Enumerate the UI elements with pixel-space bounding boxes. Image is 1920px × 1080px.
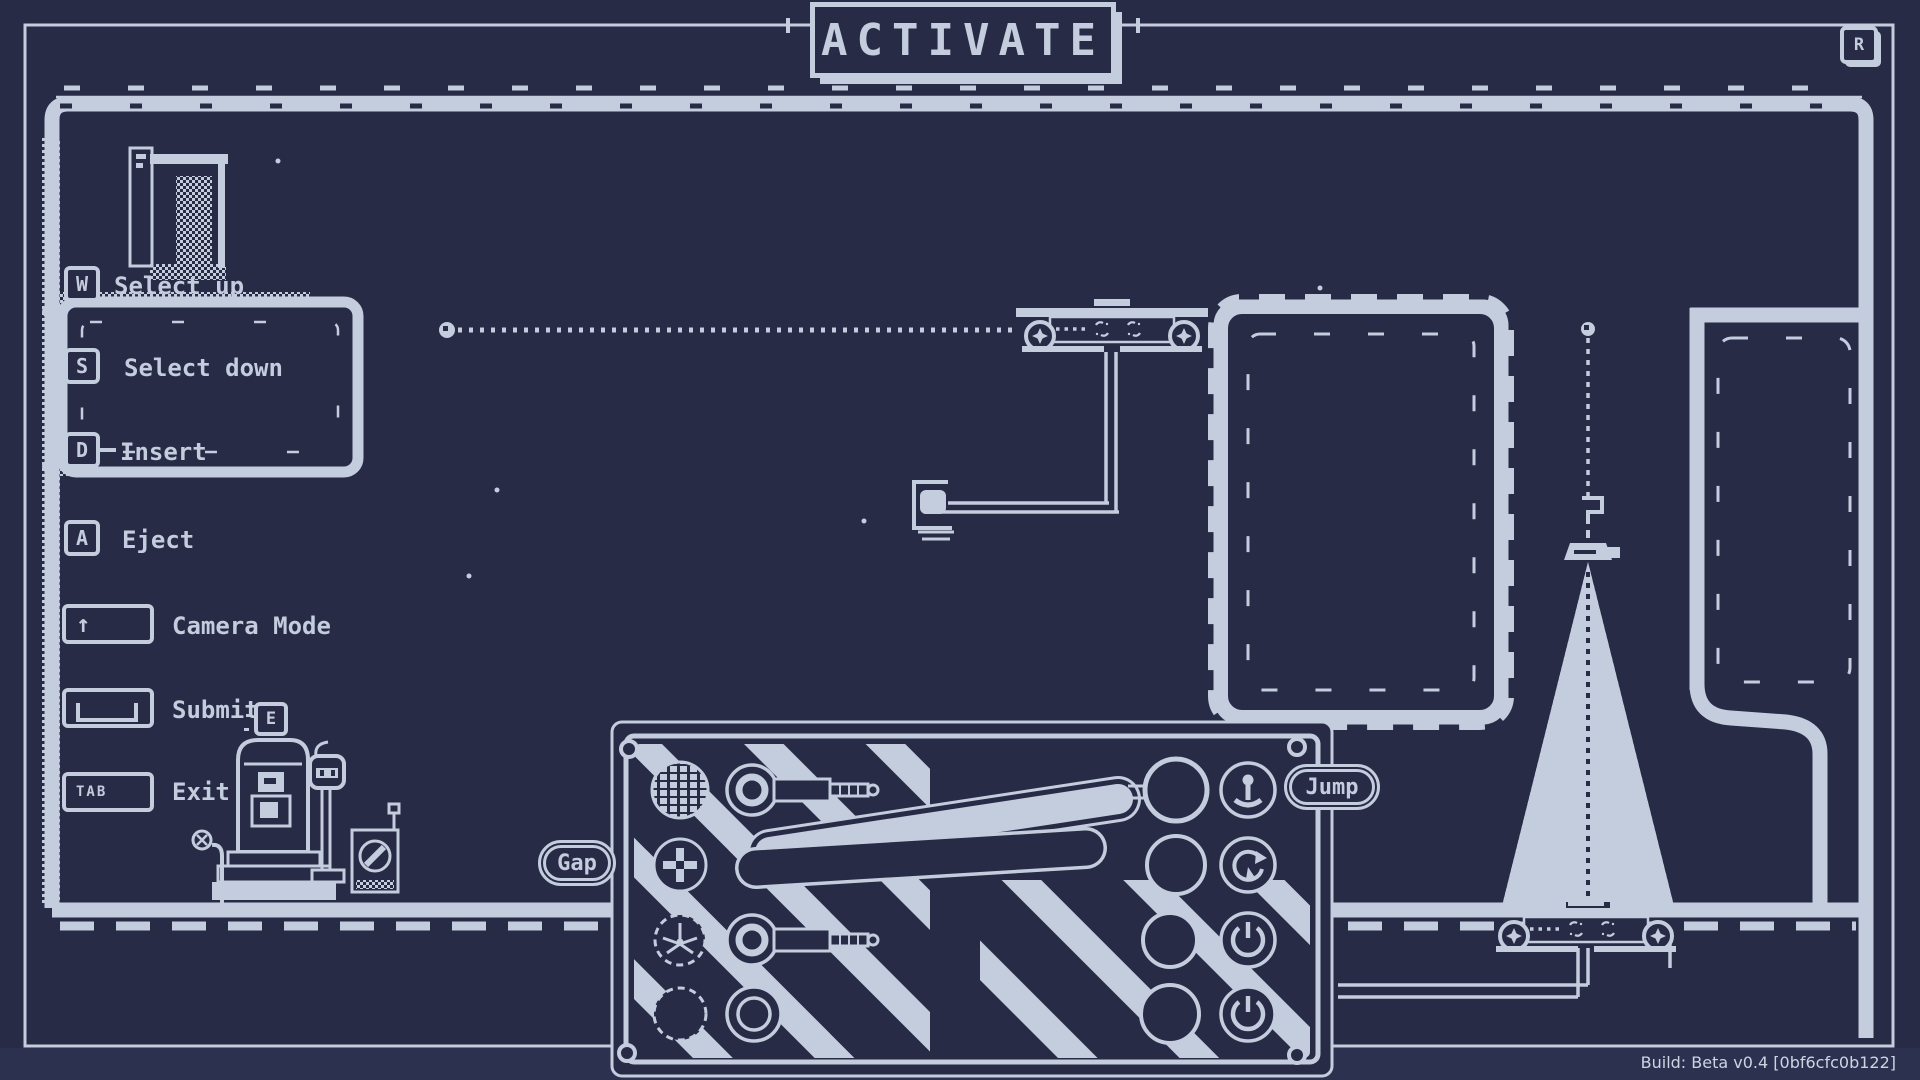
gap-tag[interactable]: Gap [538, 840, 616, 886]
key-hint-a: A [64, 520, 100, 556]
legend-label-submit: Submit [172, 696, 259, 724]
restart-key-hint: R [1840, 26, 1878, 64]
legend-label-exit: Exit [172, 778, 230, 806]
key-hint-space [62, 688, 154, 728]
legend-label-select-up: Select up [114, 272, 244, 300]
legend-label-camera-mode: Camera Mode [172, 612, 331, 640]
legend-label-select-down: Select down [124, 354, 283, 382]
spacebar-icon [76, 703, 138, 722]
key-hint-tab: TAB [62, 772, 154, 812]
interact-key-prompt[interactable]: E [254, 702, 288, 736]
game-screen: ACTIVATE R W Select up S Select down D I… [0, 0, 1920, 1080]
restart-key-label: R [1854, 35, 1864, 55]
build-version-text: Build: Beta v0.4 [0bf6cfc0b122] [1641, 1053, 1896, 1072]
up-arrow-icon: ↑ [76, 612, 90, 636]
key-hint-d: D [64, 432, 100, 468]
key-hint-camera: ↑ [62, 604, 154, 644]
title-banner: ACTIVATE [810, 2, 1116, 78]
legend-label-eject: Eject [122, 526, 194, 554]
page-title: ACTIVATE [821, 15, 1105, 66]
key-hint-s: S [64, 348, 100, 384]
key-hint-w: W [64, 266, 100, 302]
legend-label-insert: Insert [120, 438, 207, 466]
jump-tag[interactable]: Jump [1284, 764, 1380, 810]
